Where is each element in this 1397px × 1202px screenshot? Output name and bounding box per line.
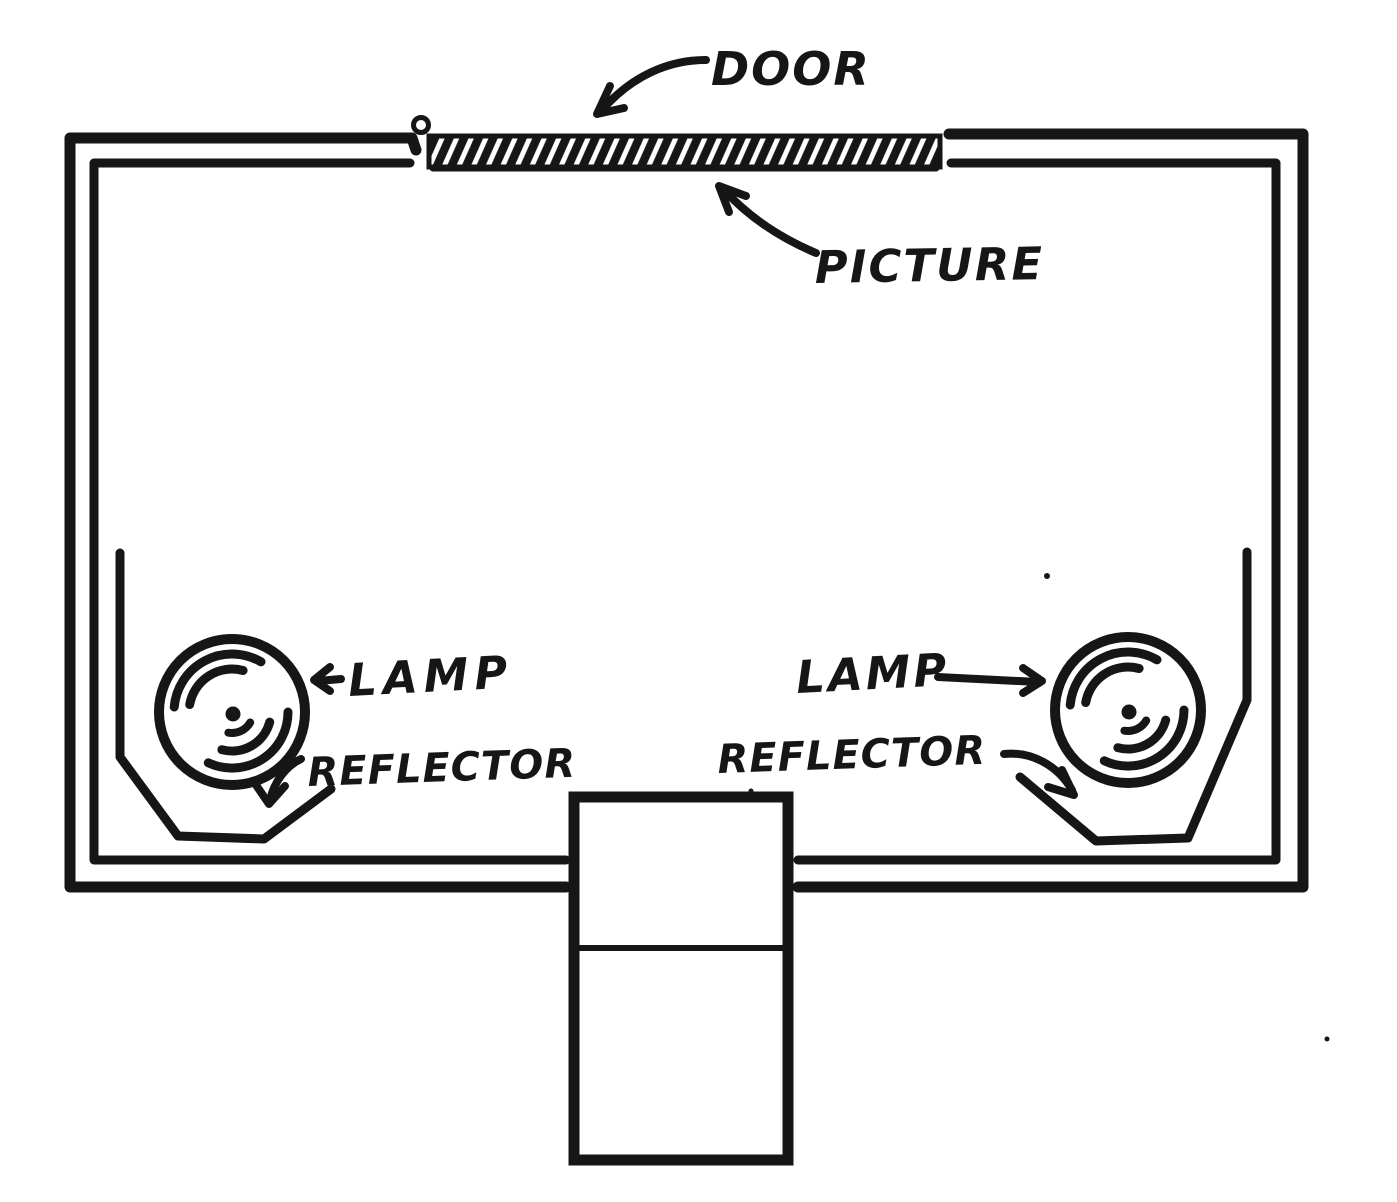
lamp-right-label: LAMP xyxy=(795,643,951,704)
picture-strip xyxy=(429,136,940,168)
reflector-right-label: REFLECTOR xyxy=(717,728,987,783)
lamp-left-label: LAMP xyxy=(347,645,515,707)
ink-speck xyxy=(1044,573,1050,579)
ink-speck xyxy=(749,789,754,794)
diagram-canvas: DOOR PICTURE LAMP REFLECTOR LAMP xyxy=(0,0,1397,1202)
door-label: DOOR xyxy=(711,42,871,96)
reflector-left-label: REFLECTOR xyxy=(307,741,577,796)
lens-tube xyxy=(574,797,788,1160)
picture-label: PICTURE xyxy=(814,237,1044,294)
hand-drawn-diagram: DOOR PICTURE LAMP REFLECTOR LAMP xyxy=(0,0,1397,1202)
ink-speck xyxy=(1325,1037,1330,1042)
door-hinge-icon xyxy=(414,118,429,133)
